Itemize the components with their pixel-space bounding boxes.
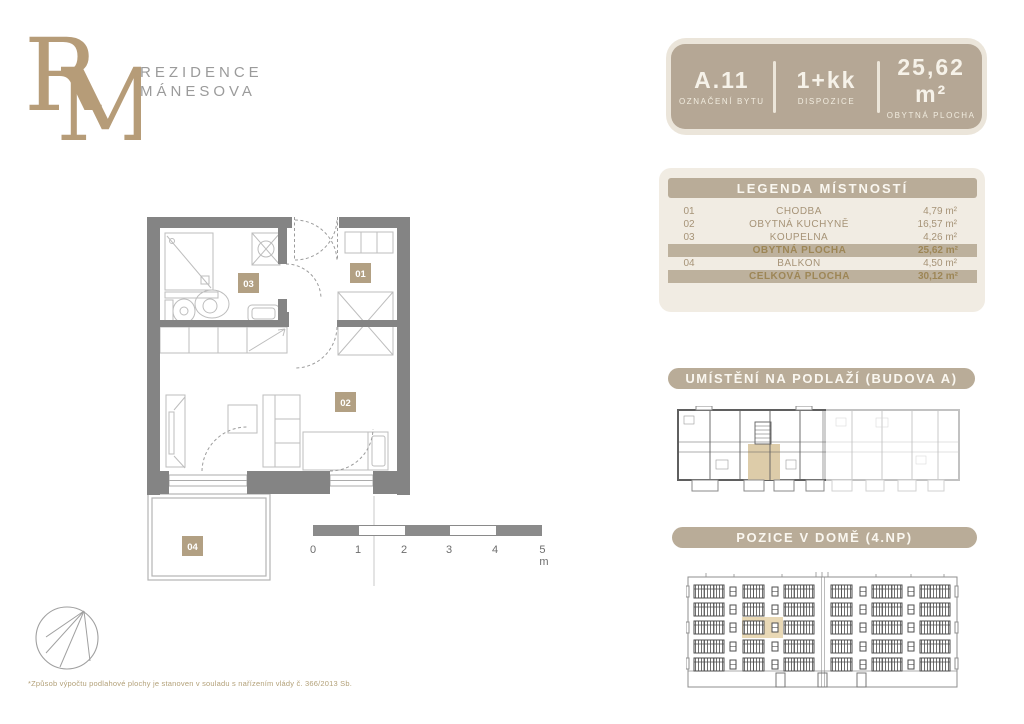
scale-bar: 0 1 2 3 4 5 m: [311, 522, 551, 558]
scale-bar-segments: [313, 525, 542, 536]
building-a-plan: [678, 406, 962, 498]
scale-tick-5: 5 m: [539, 544, 548, 568]
scale-tick-3: 3: [446, 544, 452, 556]
brand-monogram: R M: [16, 14, 141, 144]
unit-id-column: A.11 OZNAČENÍ BYTU: [671, 67, 773, 106]
legend-row-01: 01 CHODBA 4,79 m²: [659, 205, 985, 218]
scale-tick-4: 4: [492, 544, 498, 556]
highlighted-unit: [748, 444, 780, 480]
legend-row-04: 04 BALKON 4,50 m²: [659, 257, 985, 270]
scale-tick-0: 0: [310, 544, 316, 556]
monogram-m-letter: M: [56, 47, 141, 144]
room-number: 02: [659, 219, 719, 230]
room-number: 03: [659, 232, 719, 243]
building-elevation: [686, 570, 961, 695]
elevation-outline: [688, 577, 957, 687]
room-legend-panel: LEGENDA MÍSTNOSTÍ 01 CHODBA 4,79 m² 02 O…: [659, 168, 985, 312]
unit-area-label: OBYTNÁ PLOCHA: [880, 111, 982, 120]
room-area: 4,26 m²: [879, 232, 985, 243]
compass-icon: [33, 603, 101, 673]
unit-layout: 1+kk: [776, 67, 878, 94]
faded-building-half: [826, 406, 962, 498]
room-labels: 01 03 02 04: [182, 263, 371, 556]
legend-subtotal-row: OBYTNÁ PLOCHA 25,62 m²: [668, 244, 977, 257]
unit-layout-column: 1+kk DISPOZICE: [776, 67, 878, 106]
total-name: CELKOVÁ PLOCHA: [719, 271, 880, 282]
legend-total-row: CELKOVÁ PLOCHA 30,12 m²: [668, 270, 977, 283]
unit-info-card-inner: A.11 OZNAČENÍ BYTU 1+kk DISPOZICE 25,62 …: [671, 44, 982, 129]
room-area: 4,50 m²: [879, 258, 985, 269]
brochure-page: R M REZIDENCE MÁNESOVA A.11 OZNAČENÍ BYT…: [0, 0, 1024, 724]
total-area: 30,12 m²: [880, 271, 977, 282]
room-label-04: 04: [187, 542, 198, 553]
room-name: BALKON: [719, 258, 879, 269]
brand-name: REZIDENCE MÁNESOVA: [140, 63, 263, 101]
unit-area-column: 25,62 m² OBYTNÁ PLOCHA: [880, 54, 982, 120]
subtotal-name: OBYTNÁ PLOCHA: [719, 245, 880, 256]
room-area: 4,79 m²: [879, 206, 985, 217]
unit-layout-label: DISPOZICE: [776, 97, 878, 106]
legend-row-03: 03 KOUPELNA 4,26 m²: [659, 231, 985, 244]
room-name: KOUPELNA: [719, 232, 879, 243]
room-label-03: 03: [243, 279, 254, 290]
scale-tick-1: 1: [355, 544, 361, 556]
room-number: 04: [659, 258, 719, 269]
legend-title: LEGENDA MÍSTNOSTÍ: [668, 178, 977, 198]
brand-name-line2: MÁNESOVA: [140, 82, 263, 101]
subtotal-area: 25,62 m²: [880, 245, 977, 256]
scale-tick-2: 2: [401, 544, 407, 556]
room-name: OBYTNÁ KUCHYNĚ: [719, 219, 879, 230]
section-header-house-position: POZICE V DOMĚ (4.NP): [672, 527, 977, 548]
unit-id: A.11: [671, 67, 773, 94]
section-header-floor-location: UMÍSTĚNÍ NA PODLAŽÍ (BUDOVA A): [668, 368, 975, 389]
legend-row-02: 02 OBYTNÁ KUCHYNĚ 16,57 m²: [659, 218, 985, 231]
room-area: 16,57 m²: [879, 219, 985, 230]
unit-info-card: A.11 OZNAČENÍ BYTU 1+kk DISPOZICE 25,62 …: [666, 38, 987, 135]
footnote: *Způsob výpočtu podlahové plochy je stan…: [28, 679, 352, 688]
room-number: 01: [659, 206, 719, 217]
room-label-02: 02: [340, 398, 351, 409]
building-floor-plan: [676, 406, 962, 498]
room-name: CHODBA: [719, 206, 879, 217]
unit-area: 25,62 m²: [880, 54, 982, 108]
room-label-01: 01: [355, 269, 366, 280]
brand-name-line1: REZIDENCE: [140, 63, 263, 82]
unit-id-label: OZNAČENÍ BYTU: [671, 97, 773, 106]
